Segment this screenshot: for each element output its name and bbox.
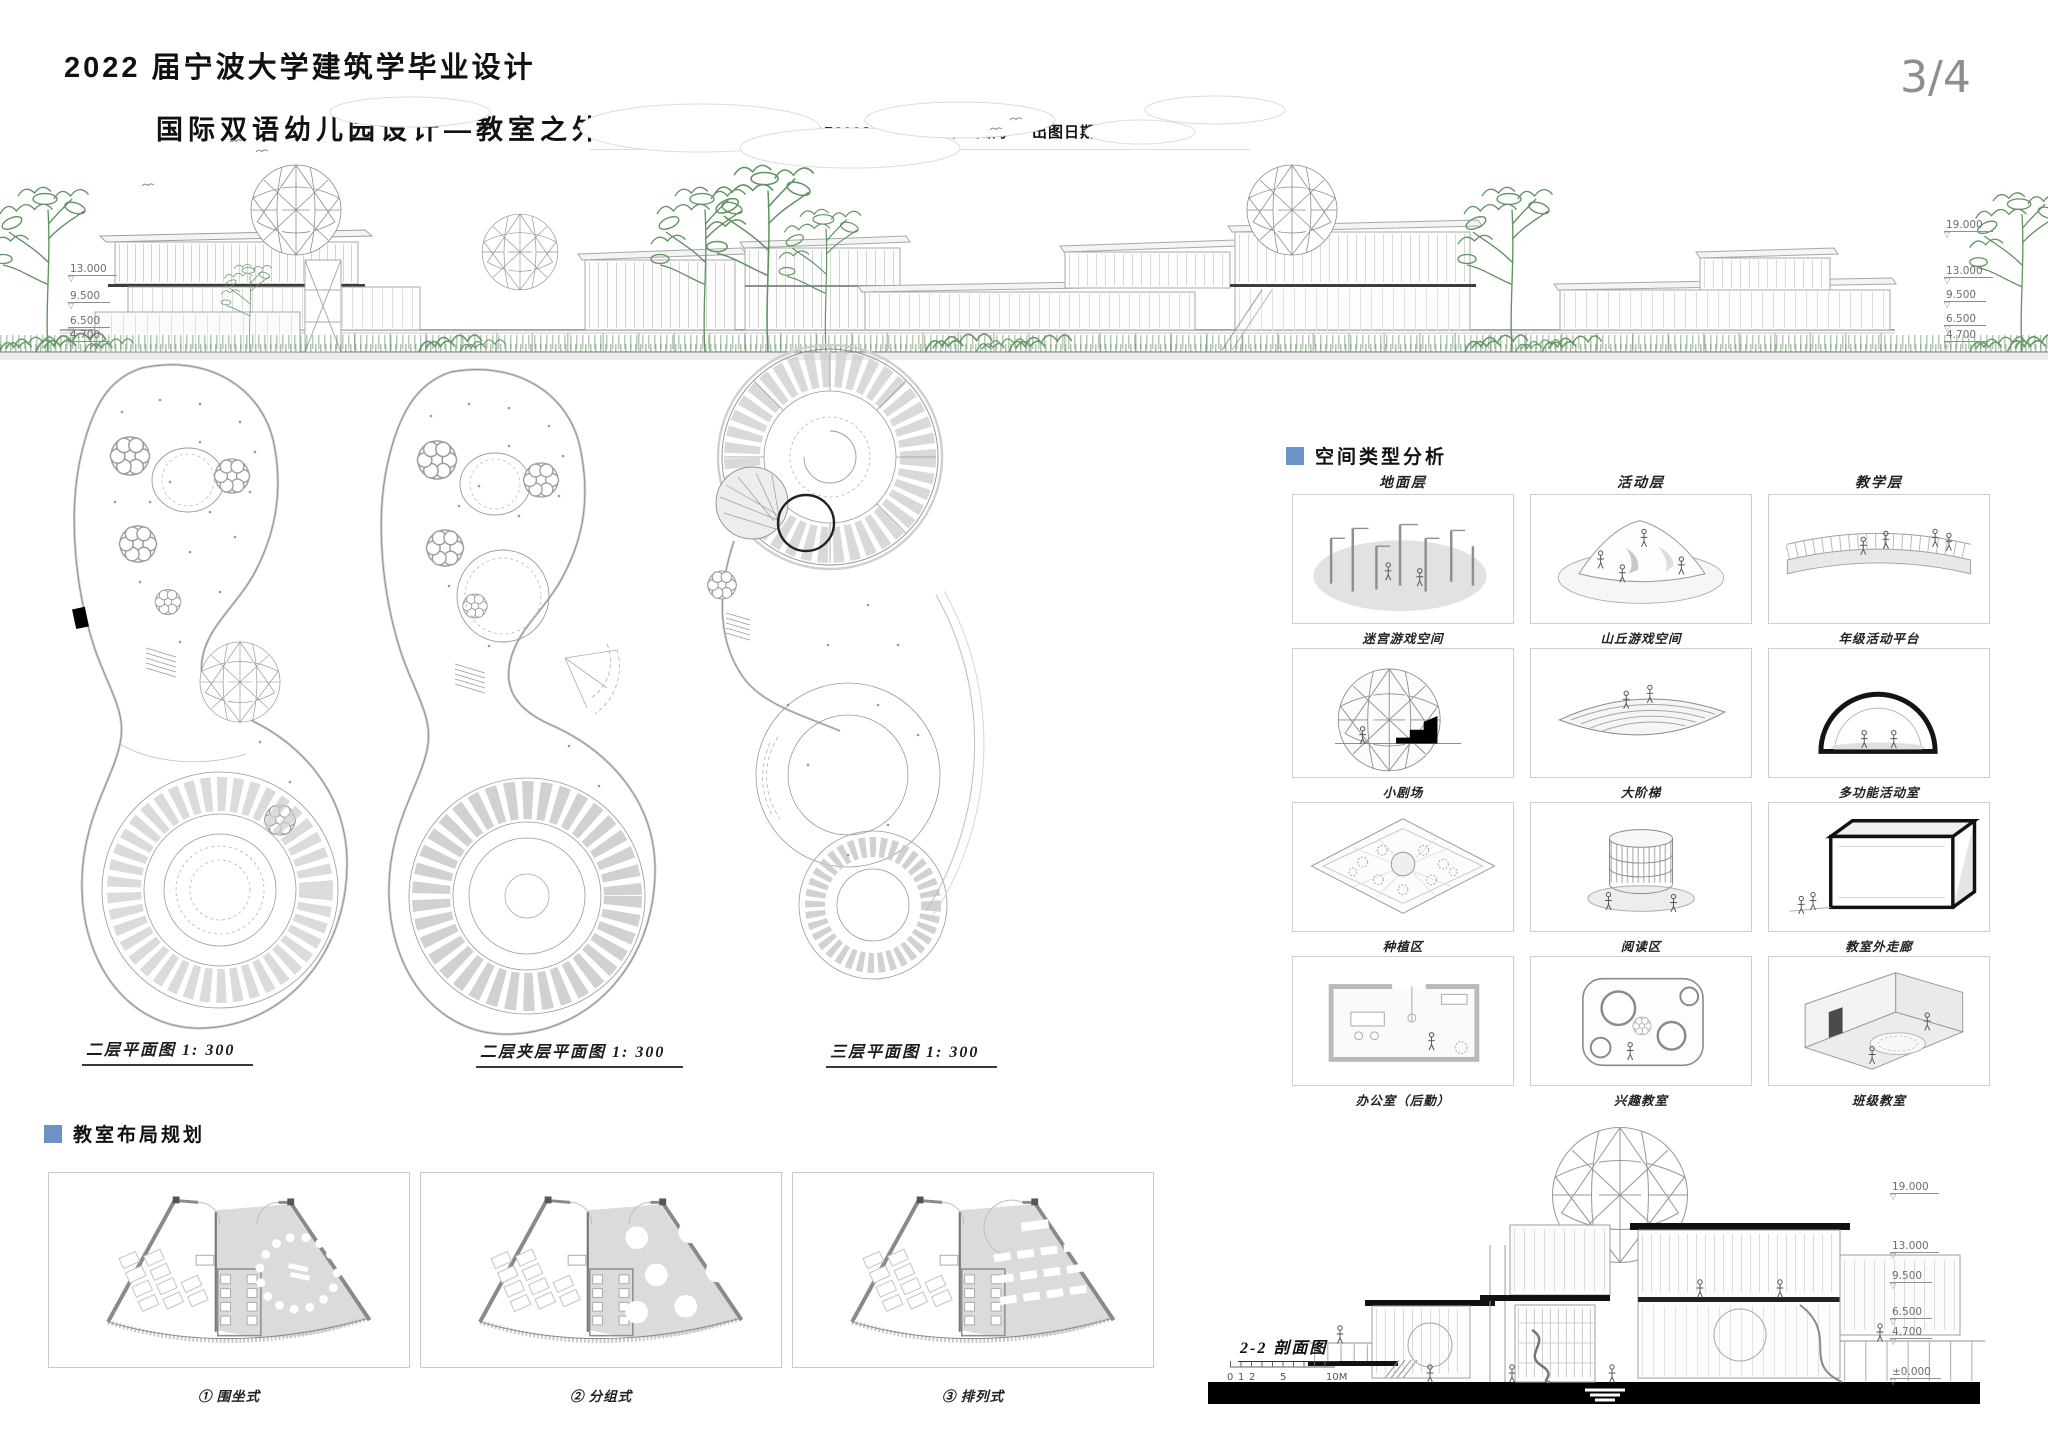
level-value: 13.000 xyxy=(1944,266,1993,278)
stair-hatch xyxy=(726,613,750,640)
level-marker-icon: ▽ xyxy=(68,303,110,309)
planting-area-icon xyxy=(1293,803,1513,931)
column-header-activity: 活动层 xyxy=(1530,472,1752,492)
plan-2f-mezzanine-drawing xyxy=(355,358,665,1038)
solid-core xyxy=(72,607,89,629)
level-marker-icon: ▽ xyxy=(68,342,110,348)
scale-tick: 1 xyxy=(1238,1372,1244,1383)
cloud-sketches xyxy=(330,96,1285,168)
elevation-level-label: 9.500▽ xyxy=(68,291,110,309)
hatched-dome-circle xyxy=(716,467,788,539)
plan-3f-caption: 三层平面图 1: 300 xyxy=(826,1038,997,1068)
circle-seating-plan xyxy=(49,1173,409,1367)
level-value: 6.500 xyxy=(1944,314,1986,326)
level-value: 9.500 xyxy=(1890,1271,1932,1283)
level-marker-icon: ▽ xyxy=(1944,302,1986,308)
elevation-level-label: 4.700▽ xyxy=(1944,330,1986,348)
building-cluster-middle xyxy=(578,236,910,330)
space-analysis-title: 空间类型分析 xyxy=(1315,442,1447,469)
analysis-caption: 多功能活动室 xyxy=(1768,782,1990,801)
classroom-layout-header: 教室布局规划 xyxy=(44,1120,205,1147)
level-marker-icon: ▽ xyxy=(1890,1253,1939,1259)
level-value: 19.000 xyxy=(1944,220,1993,232)
analysis-cell xyxy=(1768,956,1990,1086)
level-marker-icon: ▽ xyxy=(1890,1319,1932,1325)
plan-2f-drawing xyxy=(50,352,350,1042)
row-seating-plan xyxy=(793,1173,1153,1367)
stair-hatch xyxy=(455,664,485,693)
section-level-label: 13.000▽ xyxy=(1890,1241,1939,1259)
multifunction-room-icon xyxy=(1769,649,1989,777)
analysis-cell xyxy=(1292,956,1514,1086)
analysis-caption: 小剧场 xyxy=(1292,782,1514,801)
analysis-cell xyxy=(1292,648,1514,778)
level-marker-icon: ▽ xyxy=(1944,342,1986,348)
classroom-pod xyxy=(708,571,737,599)
layout-caption: ① 围坐式 xyxy=(48,1385,410,1405)
geodesic-dome-right xyxy=(1247,165,1337,255)
column-header-ground: 地面层 xyxy=(1292,472,1514,492)
analysis-caption: 阅读区 xyxy=(1530,936,1752,955)
level-value: 4.700 xyxy=(1890,1327,1932,1339)
elevation-level-label: 13.000▽ xyxy=(1944,266,1993,284)
class-classroom-icon xyxy=(1769,957,1989,1085)
elevation-level-label: 19.000▽ xyxy=(1944,220,1993,238)
elevation-level-label: 9.500▽ xyxy=(1944,290,1986,308)
level-marker-icon: ▽ xyxy=(1890,1339,1932,1345)
classroom-layout-title: 教室布局规划 xyxy=(73,1120,205,1147)
analysis-cell xyxy=(1530,956,1752,1086)
layout-box-circle xyxy=(48,1172,410,1368)
classroom-corridor-icon xyxy=(1769,803,1989,931)
hill-play-icon xyxy=(1531,495,1751,623)
board-title: 2022 届宁波大学建筑学毕业设计 xyxy=(64,44,536,86)
analysis-caption: 山丘游戏空间 xyxy=(1530,628,1752,647)
radial-classroom-ring xyxy=(409,778,645,1014)
nap-beds xyxy=(119,1232,208,1325)
level-marker-icon: ▽ xyxy=(1890,1379,1941,1385)
section-level-label: 19.000▽ xyxy=(1890,1182,1939,1200)
maze-play-icon xyxy=(1293,495,1513,623)
space-analysis-header: 空间类型分析 xyxy=(1286,442,1447,469)
scale-tick: 5 xyxy=(1280,1372,1286,1383)
section-level-label: 4.700▽ xyxy=(1890,1327,1932,1345)
site-elevation-drawing xyxy=(0,90,2048,382)
analysis-cell xyxy=(1292,494,1514,624)
analysis-cell xyxy=(1530,648,1752,778)
analysis-cell xyxy=(1530,494,1752,624)
section-level-label: 6.500▽ xyxy=(1890,1307,1932,1325)
analysis-caption: 种植区 xyxy=(1292,936,1514,955)
level-value: 13.000 xyxy=(1890,1241,1939,1253)
grand-stair-icon xyxy=(1531,649,1751,777)
spiral-stair xyxy=(804,431,856,483)
section-caption: 2-2 剖面图 xyxy=(1238,1334,1339,1362)
analysis-caption: 迷宫游戏空间 xyxy=(1292,628,1514,647)
analysis-cell xyxy=(1530,802,1752,932)
stair-hatch xyxy=(146,648,176,677)
level-marker-icon: ▽ xyxy=(1944,278,1993,284)
analysis-cell xyxy=(1292,802,1514,932)
analysis-caption: 教室外走廊 xyxy=(1768,936,1990,955)
classroom-pods xyxy=(417,441,558,618)
section-level-label: 9.500▽ xyxy=(1890,1271,1932,1289)
level-value: 6.500 xyxy=(1890,1307,1932,1319)
elevation-level-label: 13.000▽ xyxy=(68,264,117,282)
plan-2f-caption: 二层平面图 1: 300 xyxy=(82,1036,253,1066)
level-value: 9.500 xyxy=(1944,290,1986,302)
level-marker-icon: ▽ xyxy=(68,276,117,282)
plan-3f-drawing xyxy=(668,345,968,1035)
radial-classroom-ring xyxy=(102,772,338,1008)
analysis-caption: 大阶梯 xyxy=(1530,782,1752,801)
section-center-core xyxy=(1480,1225,1625,1400)
elevation-level-label: 4.700▽ xyxy=(68,330,110,348)
office-icon xyxy=(1293,957,1513,1085)
column-header-teaching: 教学层 xyxy=(1768,472,1990,492)
layout-box-group xyxy=(420,1172,782,1368)
analysis-cell xyxy=(1768,802,1990,932)
mezzanine-fan xyxy=(565,644,619,714)
analysis-cell xyxy=(1768,494,1990,624)
layout-caption: ② 分组式 xyxy=(420,1385,782,1405)
level-value: 9.500 xyxy=(68,291,110,303)
layout-caption: ③ 排列式 xyxy=(792,1385,1154,1405)
geodesic-dome-left xyxy=(251,165,341,255)
scale-tick: 2 xyxy=(1249,1372,1255,1383)
building-cluster-right xyxy=(858,220,1482,350)
reading-area-icon xyxy=(1531,803,1751,931)
level-marker-icon: ▽ xyxy=(1890,1283,1932,1289)
building-cluster-far-right xyxy=(1554,248,1896,330)
plan-2f-mezzanine-caption: 二层夹层平面图 1: 300 xyxy=(476,1038,683,1068)
scale-tick: 10M xyxy=(1326,1372,1347,1383)
geodesic-dome-mid xyxy=(482,214,558,290)
lower-module-b xyxy=(799,831,947,979)
level-marker-icon: ▽ xyxy=(1944,232,1993,238)
interest-classroom-icon xyxy=(1531,957,1751,1085)
level-value: 4.700 xyxy=(68,330,110,342)
level-value: 4.700 xyxy=(1944,330,1986,342)
lower-module-a xyxy=(756,683,940,867)
level-marker-icon: ▽ xyxy=(1890,1194,1939,1200)
small-theater-icon xyxy=(1293,649,1513,777)
level-value: 13.000 xyxy=(68,264,117,276)
level-value: ±0.000 xyxy=(1890,1367,1941,1379)
level-value: 6.500 xyxy=(68,316,110,328)
grade-activity-platform-icon xyxy=(1769,495,1989,623)
level-value: 19.000 xyxy=(1890,1182,1939,1194)
plan-dome xyxy=(200,642,280,722)
analysis-caption: 年级活动平台 xyxy=(1768,628,1990,647)
layout-box-rows xyxy=(792,1172,1154,1368)
section-ground xyxy=(1208,1382,1980,1404)
presentation-board: 2022 届宁波大学建筑学毕业设计 国际双语幼儿园设计—教室之外的重要性 王倩颖… xyxy=(0,0,2048,1448)
section-level-label: ±0.000▽ xyxy=(1890,1367,1941,1385)
blue-square-icon xyxy=(1286,447,1304,465)
scale-tick: 0 xyxy=(1227,1372,1233,1383)
classroom-pods xyxy=(110,437,295,835)
group-seating-plan xyxy=(421,1173,781,1367)
blue-square-icon xyxy=(44,1125,62,1143)
building-cluster-left xyxy=(95,230,420,352)
analysis-cell xyxy=(1768,648,1990,778)
